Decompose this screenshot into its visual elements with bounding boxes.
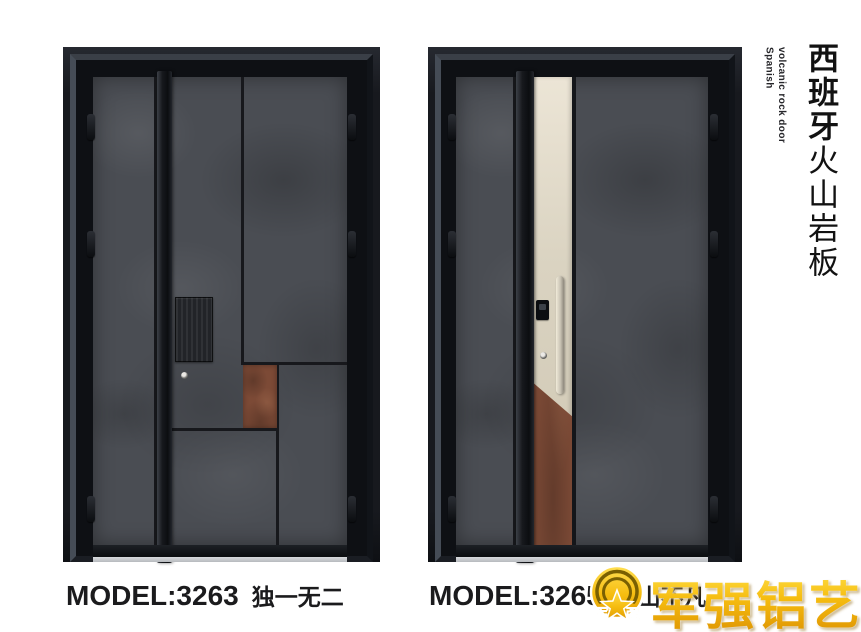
hinge bbox=[348, 496, 356, 522]
volcanic-rock-panel bbox=[456, 77, 708, 545]
model-number: MODEL:3263 bbox=[66, 580, 239, 611]
hinge bbox=[87, 496, 95, 522]
panel-seam-horizontal bbox=[172, 428, 279, 431]
hinge bbox=[710, 496, 718, 522]
model-name: 独一无二 bbox=[252, 585, 344, 611]
hinge bbox=[87, 231, 95, 257]
brand-badge-emblem-icon: 军 强 bbox=[583, 562, 651, 630]
brand-badge-icon: 军 强 bbox=[583, 562, 651, 630]
rust-accent-panel bbox=[243, 365, 277, 428]
door-photo-3263 bbox=[63, 47, 380, 562]
smart-lock bbox=[536, 300, 549, 320]
hinge bbox=[710, 231, 718, 257]
hinge bbox=[448, 231, 456, 257]
hinge bbox=[448, 114, 456, 140]
volcanic-rock-panel bbox=[93, 77, 347, 545]
pull-handle bbox=[556, 276, 564, 394]
keyhole bbox=[540, 352, 547, 359]
keyhole bbox=[181, 372, 188, 379]
door-sill bbox=[456, 557, 708, 562]
door-sill bbox=[93, 557, 347, 562]
panel-seam-vertical bbox=[241, 77, 244, 364]
hinge bbox=[710, 114, 718, 140]
subtitle-english: Spanish volcanic rock door bbox=[762, 47, 787, 143]
hinge bbox=[348, 231, 356, 257]
door-bottom-rail bbox=[456, 545, 708, 557]
panel-seam-vertical bbox=[572, 77, 576, 545]
door-bottom-rail bbox=[93, 545, 347, 557]
model-number: MODEL:3265 bbox=[429, 580, 602, 611]
hinge bbox=[87, 114, 95, 140]
title-zh-bold: 西班牙 bbox=[802, 42, 838, 144]
poster-canvas: Spanish volcanic rock door 西班牙火山岩板 MODEL… bbox=[0, 0, 861, 632]
badge-char-right: 强 bbox=[626, 606, 640, 622]
badge-char-left: 军 bbox=[595, 606, 609, 622]
title-zh-regular: 火山岩板 bbox=[802, 144, 838, 280]
handle-bar bbox=[516, 71, 534, 563]
model-label-3263: MODEL:3263独一无二 bbox=[66, 578, 344, 612]
door-photo-3265 bbox=[428, 47, 742, 562]
hinge bbox=[448, 496, 456, 522]
hinge bbox=[348, 114, 356, 140]
subtitle-english-line2: volcanic rock door bbox=[775, 47, 788, 143]
subtitle-english-line1: Spanish bbox=[762, 47, 775, 143]
brand-logo-text: 军强铝艺 bbox=[650, 565, 861, 632]
handle-bar bbox=[157, 71, 172, 563]
lock-panel bbox=[175, 297, 213, 362]
poster-title-vertical: 西班牙火山岩板 bbox=[803, 42, 837, 280]
